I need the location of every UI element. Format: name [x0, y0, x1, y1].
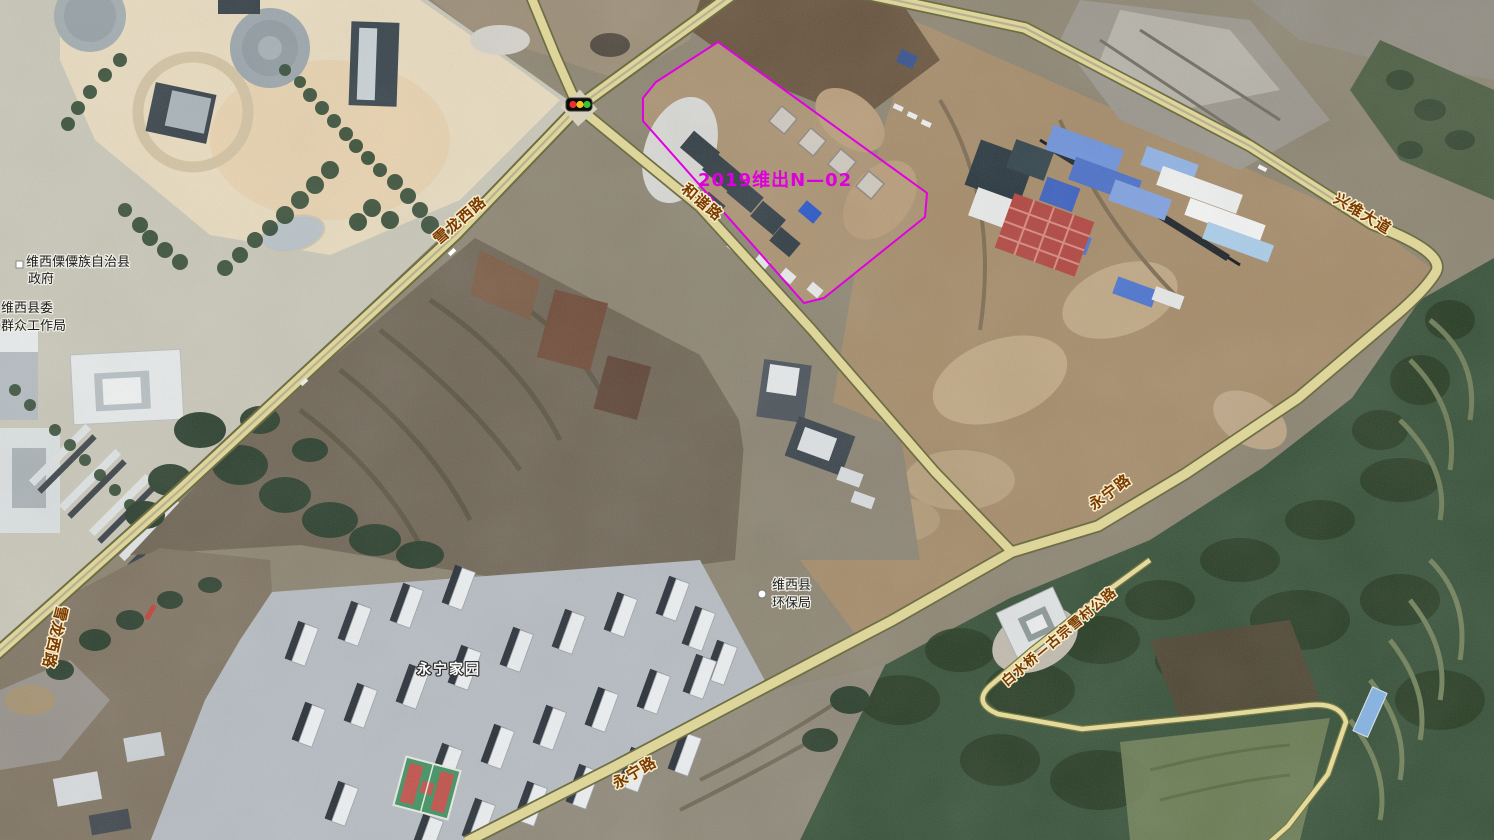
square-marker[interactable] [16, 261, 23, 268]
poi-label-line: 环保局 [772, 596, 811, 611]
circle-marker[interactable] [758, 590, 766, 598]
traffic-light-icon [566, 98, 592, 111]
parcel-label: 2019维出N—02 [698, 169, 852, 191]
traffic-light-yellow [576, 101, 583, 108]
map-canvas[interactable]: 2019维出N—02 雪龙西路 雪龙西路 和谐路 兴维大道 永宁路 永宁路 白水… [0, 0, 1494, 840]
poi-label-line: 维西县委 [1, 301, 53, 316]
poi-label-line: 政府 [28, 272, 54, 287]
traffic-light-green [583, 101, 590, 108]
traffic-light-red [569, 101, 576, 108]
poi-label-line: 群众工作局 [1, 319, 66, 334]
satellite-map[interactable]: 2019维出N—02 雪龙西路 雪龙西路 和谐路 兴维大道 永宁路 永宁路 白水… [0, 0, 1494, 840]
poi-label-line: 维西县 [772, 578, 811, 593]
poi-yongning-homeland: 永宁家园 [416, 661, 481, 678]
poi-label-line: 维西傈僳族自治县 [26, 254, 130, 270]
